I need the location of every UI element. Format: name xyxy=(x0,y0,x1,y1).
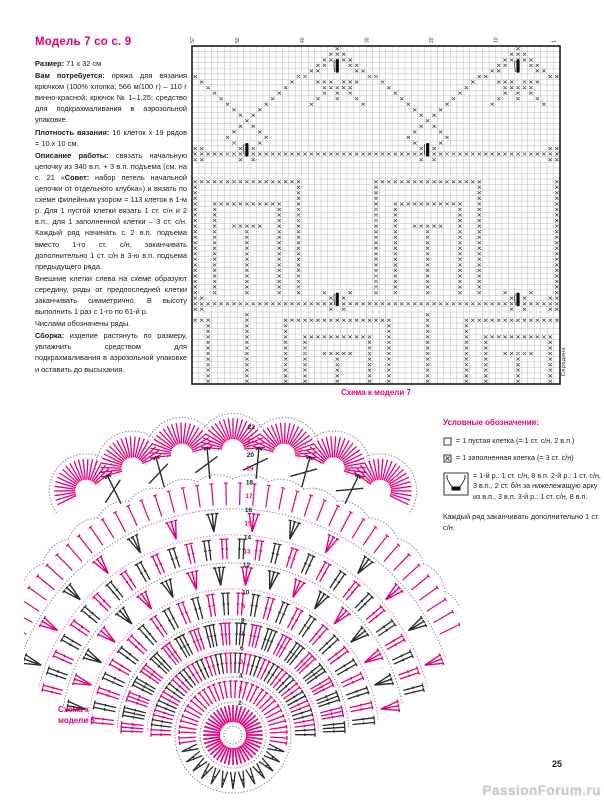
magazine-page: Модель 7 со с. 9 Размер: 71 х 32 смВам п… xyxy=(0,0,604,800)
doily-round-number: 4 xyxy=(239,672,243,679)
chart-top-label: 40 xyxy=(300,37,306,43)
legend: Условные обозначения: = 1 пустая клетка … xyxy=(443,418,603,533)
doily-round-number: 12 xyxy=(243,562,251,569)
doily-diagram-svg: 2345678910111213141516171819202122 xyxy=(24,393,460,800)
doily-stitch-symbols xyxy=(42,418,420,745)
article-body: Размер: 71 х 32 смВам потребуется: пряжа… xyxy=(35,58,187,375)
article-column: Модель 7 со с. 9 Размер: 71 х 32 смВам п… xyxy=(35,36,187,376)
doily-round-number: 17 xyxy=(245,493,253,500)
doily-round-number: 11 xyxy=(242,576,249,583)
article-paragraph: Описание работы: связать начальную цепоч… xyxy=(35,150,187,272)
doily-round-number: 5 xyxy=(240,659,244,666)
article-paragraph: Сборка: изделие растянуть по размеру, ув… xyxy=(35,330,187,374)
legend-title: Условные обозначения: xyxy=(443,418,603,427)
article-paragraph: Вам потребуется: пряжа для вязания крючк… xyxy=(35,70,187,125)
doily-round-number: 10 xyxy=(242,590,250,597)
doily-round-number: 22 xyxy=(248,424,256,431)
doily-round-number: 14 xyxy=(244,535,252,542)
legend-item-text: = 1 заполненная клетка (= 3 ст. с/н) xyxy=(456,453,574,463)
chart-top-label: 1 xyxy=(552,40,558,43)
doily-round-number: 15 xyxy=(244,521,252,528)
doily-round-number: 2 xyxy=(238,700,242,707)
chart-top-label: 50 xyxy=(235,37,241,43)
doily-round-number: 9 xyxy=(241,603,245,610)
doily-round-number: 8 xyxy=(241,617,245,624)
legend-item-empty-cell: = 1 пустая клетка (= 1 ст. с/н, 2 в.п.) xyxy=(443,436,603,446)
article-paragraph: Внешние клетки слева на схеме образуют с… xyxy=(35,273,187,317)
chart-middle-label: Середина xyxy=(561,347,567,376)
doily-round-number: 7 xyxy=(241,631,245,638)
filet-chart-svg: 5750403020101 xyxy=(188,30,568,390)
doily-round-number: 3 xyxy=(239,686,243,693)
doily-round-number: 21 xyxy=(247,438,255,445)
chart-top-label: 10 xyxy=(493,37,499,43)
chart-top-label: 57 xyxy=(190,37,196,43)
page-title: Модель 7 со с. 9 xyxy=(35,36,187,48)
legend-item-text: = 1-й р.: 1 ст. с/н, 8 в.п. 2-й р.: 1 ст… xyxy=(473,471,603,502)
doily-caption: Схема к модели 6 xyxy=(58,704,138,726)
legend-item-text: = 1 пустая клетка (= 1 ст. с/н, 2 в.п.) xyxy=(456,436,574,446)
doily-round-number: 6 xyxy=(240,645,244,652)
chart-top-label: 30 xyxy=(364,37,370,43)
article-paragraph: Плотность вязания: 16 клеток х 19 рядов … xyxy=(35,127,187,149)
page-number: 25 xyxy=(552,759,562,769)
doily-round-number: 16 xyxy=(245,507,253,514)
doily-round-number: 13 xyxy=(243,548,251,555)
watermark: PassionForum.ru xyxy=(482,783,601,798)
legend-item-filled-cell: = 1 заполненная клетка (= 3 ст. с/н) xyxy=(443,453,603,463)
legend-footnote: Каждый ряд заканчивать дополнительно 1 с… xyxy=(443,512,603,533)
chart-top-label: 20 xyxy=(429,37,435,43)
doily-stitch-symbols xyxy=(203,705,263,765)
article-paragraph: Размер: 71 х 32 см xyxy=(35,58,187,69)
doily-round-number: 18 xyxy=(246,479,254,486)
article-paragraph: Числами обозначены ряды. xyxy=(35,318,187,329)
legend-item-arc-cluster: = 1-й р.: 1 ст. с/н, 8 в.п. 2-й р.: 1 ст… xyxy=(443,471,603,502)
doily-round-number: 20 xyxy=(247,452,255,459)
doily-round-number: 19 xyxy=(246,466,254,473)
